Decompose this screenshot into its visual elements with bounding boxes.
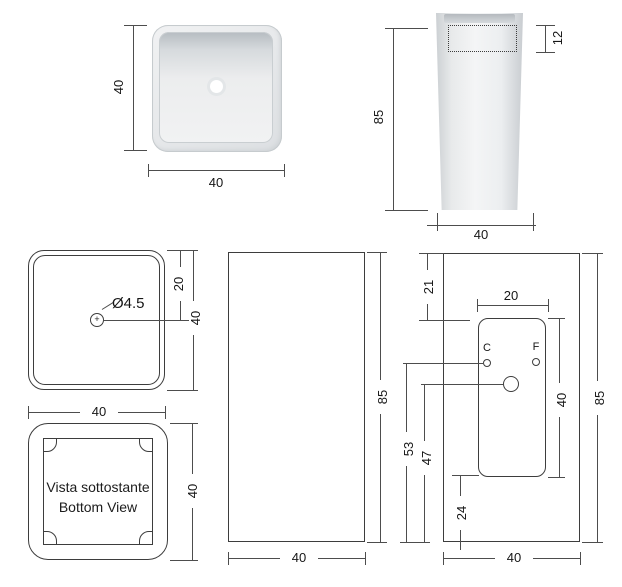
dim-label-front-width: 40 — [461, 228, 501, 242]
dim-label-top-drawing-width: 40 — [80, 405, 118, 419]
dim-label-side-width: 40 — [280, 551, 318, 565]
corner-foot — [139, 531, 153, 545]
dim-line — [393, 28, 394, 211]
dim-tick — [443, 552, 444, 565]
dim-ext-line — [582, 542, 603, 543]
dim-ext-line — [548, 477, 565, 478]
dim-ext-line — [104, 320, 197, 321]
tap-hole-mark: + — [90, 313, 104, 327]
dim-ext-line — [400, 542, 430, 543]
dim-tick — [124, 150, 147, 151]
plus-glyph: + — [94, 314, 99, 324]
dim-label-front-height: 85 — [372, 103, 386, 131]
bottom-view-caption: Vista sottostante Bottom View — [33, 477, 163, 517]
leader-line-drain — [421, 384, 503, 385]
dim-tick — [28, 406, 29, 419]
dim-line — [545, 25, 546, 53]
dim-ext-line — [437, 213, 438, 231]
dim-tick — [365, 552, 366, 565]
dim-label-hole-offset: 20 — [172, 267, 186, 301]
dim-tick — [165, 406, 166, 419]
dim-ext-line — [170, 423, 198, 424]
hot-water-label: F — [529, 341, 543, 353]
dim-ext-line — [367, 252, 387, 253]
top-view-photo — [152, 25, 282, 152]
dim-line — [477, 305, 548, 306]
caption-italian: Vista sottostante — [33, 477, 163, 497]
dim-ext-line — [419, 320, 470, 321]
dim-label-opening-height: 40 — [555, 383, 569, 417]
dim-tick — [124, 25, 147, 26]
dim-tick — [536, 52, 555, 53]
dim-label-back-width: 40 — [495, 551, 533, 565]
dim-ext-line — [385, 28, 428, 29]
side-view-outline — [228, 252, 365, 542]
dim-label-top-offset: 21 — [422, 270, 436, 304]
dim-line — [133, 25, 134, 150]
dim-tick — [228, 552, 229, 565]
technical-drawing-sheet: 40 40 85 12 40 + Ø4.5 20 40 40 Vista sot… — [0, 0, 622, 587]
cold-water-hole — [483, 359, 491, 367]
caption-english: Bottom View — [33, 497, 163, 517]
dim-label-bottom-offset: 24 — [455, 496, 469, 530]
hot-water-hole — [532, 358, 540, 366]
dim-ext-line — [533, 213, 534, 231]
dim-ext-line — [167, 390, 198, 391]
basin-opening — [444, 14, 515, 23]
dim-label-back-height: 85 — [593, 381, 607, 415]
dim-label-side-height: 85 — [376, 380, 390, 414]
drain-connection-hole — [503, 376, 519, 392]
dim-label-opening-width: 20 — [495, 289, 527, 303]
dim-ext-line — [170, 560, 198, 561]
dim-tick — [580, 552, 581, 565]
dim-tick — [548, 299, 549, 312]
dim-label-top-width: 40 — [196, 176, 236, 190]
rim-depth-dashed-outline — [448, 25, 517, 52]
dim-line — [148, 170, 284, 171]
drain-hole — [210, 80, 223, 93]
dim-label-bottom-view-height: 40 — [186, 474, 200, 508]
leader-line-taps — [403, 363, 483, 364]
cold-water-label: C — [480, 342, 494, 354]
dim-tick — [284, 164, 285, 177]
dim-ext-line — [452, 475, 479, 476]
dim-tick — [148, 164, 149, 177]
dim-ext-line — [582, 253, 603, 254]
dim-label-top-drawing-height: 40 — [189, 301, 203, 335]
dim-ext-line — [548, 318, 565, 319]
dim-label-drain-height: 47 — [420, 441, 434, 475]
dim-ext-line — [419, 253, 444, 254]
dim-label-taps-height: 53 — [402, 432, 416, 466]
dim-ext-line — [367, 542, 387, 543]
dim-ext-line — [385, 210, 428, 211]
dim-label-top-height: 40 — [112, 73, 126, 101]
hole-diameter-label: Ø4.5 — [112, 297, 154, 311]
dim-tick — [477, 299, 478, 312]
dim-label-rim-depth: 12 — [551, 24, 565, 52]
dim-line — [427, 225, 536, 226]
